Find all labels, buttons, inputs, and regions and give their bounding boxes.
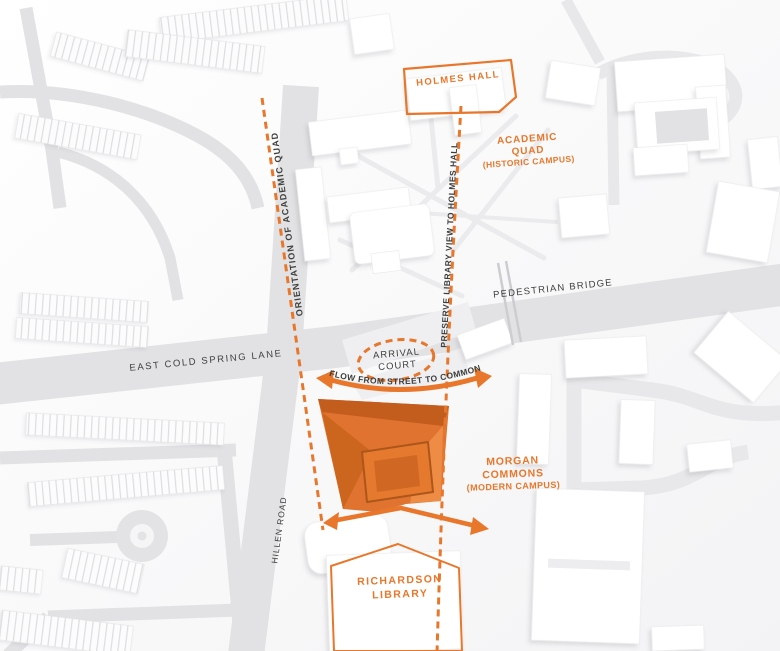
townhouse-row	[0, 566, 43, 594]
building	[339, 147, 359, 165]
building	[516, 373, 551, 464]
site-model-canvas: FLOW FROM STREET TO COMMONS	[0, 0, 780, 651]
building	[558, 194, 609, 238]
holmes-hall-tower	[449, 84, 482, 135]
building	[564, 336, 648, 378]
road-residential	[0, 450, 236, 458]
morgan-commons-label: MORGAN COMMONS (MODERN CAMPUS)	[466, 454, 561, 495]
morgan-commons-courtyard-inner	[374, 455, 420, 492]
building	[371, 250, 401, 273]
building	[350, 13, 395, 54]
site-plan-map: FLOW FROM STREET TO COMMONS HOLMES HALL …	[0, 0, 780, 651]
building	[633, 144, 689, 176]
building	[706, 181, 780, 263]
arrival-court-label: ARRIVAL COURT	[373, 346, 422, 373]
cul-de-sac-center	[138, 532, 147, 541]
richardson-library-label: RICHARDSON LIBRARY	[357, 573, 443, 603]
academic-quad-label: ACADEMIC QUAD (HISTORIC CAMPUS)	[481, 131, 575, 172]
building	[545, 60, 600, 105]
building	[747, 137, 780, 190]
building-courtyard	[655, 108, 709, 144]
building	[687, 440, 734, 472]
building	[619, 399, 655, 464]
road-residential	[30, 537, 118, 540]
building	[652, 625, 705, 651]
